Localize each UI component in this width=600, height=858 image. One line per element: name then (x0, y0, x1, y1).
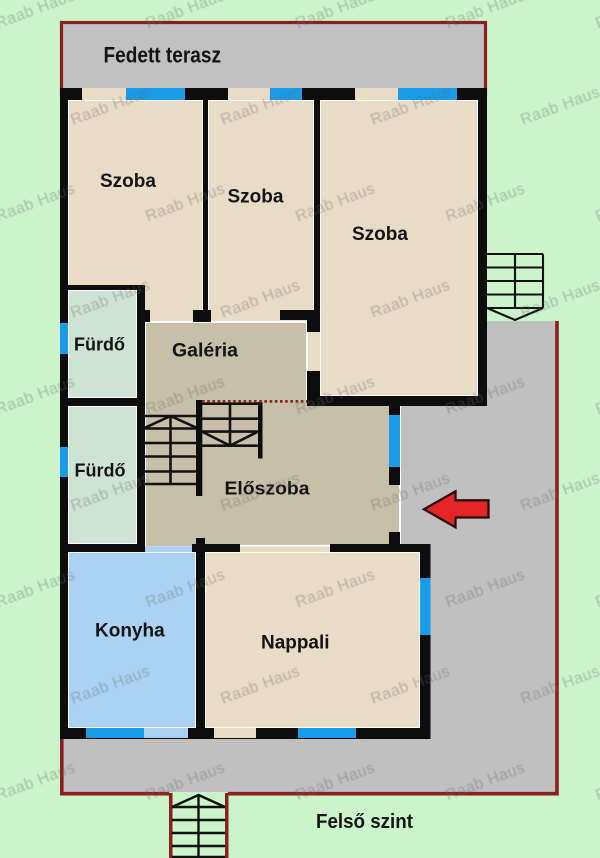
svg-text:Szoba: Szoba (100, 171, 156, 192)
svg-text:Felső szint: Felső szint (316, 811, 413, 833)
svg-text:Konyha: Konyha (95, 621, 165, 642)
svg-text:Szoba: Szoba (352, 224, 408, 245)
svg-text:Fürdő: Fürdő (74, 335, 125, 355)
svg-text:Szoba: Szoba (228, 187, 284, 208)
svg-text:Fedett terasz: Fedett terasz (104, 43, 222, 68)
svg-text:Fürdő: Fürdő (75, 461, 126, 481)
svg-text:Nappali: Nappali (261, 633, 330, 654)
svg-text:Galéria: Galéria (172, 340, 238, 361)
